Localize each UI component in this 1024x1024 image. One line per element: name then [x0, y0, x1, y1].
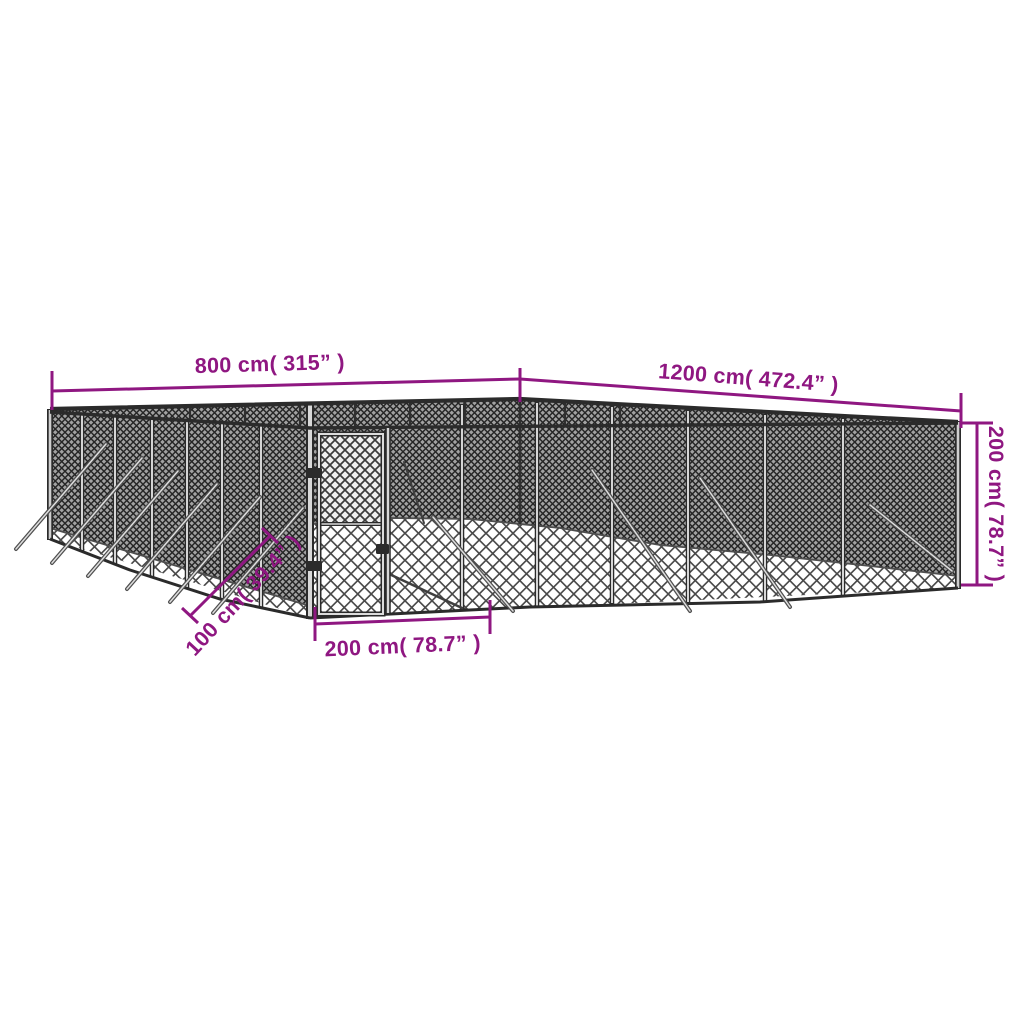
- gate-latch: [376, 544, 389, 554]
- dim-gate-line: [315, 617, 490, 624]
- gate: [306, 427, 389, 614]
- product-dimension-diagram: 800 cm( 315” ) 1200 cm( 472.4” ) 200 cm(…: [0, 0, 1024, 1024]
- gate-upper-mesh: [319, 434, 383, 524]
- gate-hinge-bottom: [306, 561, 322, 571]
- dimension-height-label: 200 cm( 78.7” ): [984, 426, 1008, 582]
- dimension-gate-label: 200 cm( 78.7” ): [324, 631, 481, 662]
- gate-hinge-top: [306, 468, 322, 478]
- gate-lower-mesh: [319, 524, 383, 614]
- dim-800-line: [52, 379, 520, 391]
- dimension-800-label: 800 cm( 315” ): [194, 350, 345, 378]
- kennel-illustration: [16, 399, 958, 619]
